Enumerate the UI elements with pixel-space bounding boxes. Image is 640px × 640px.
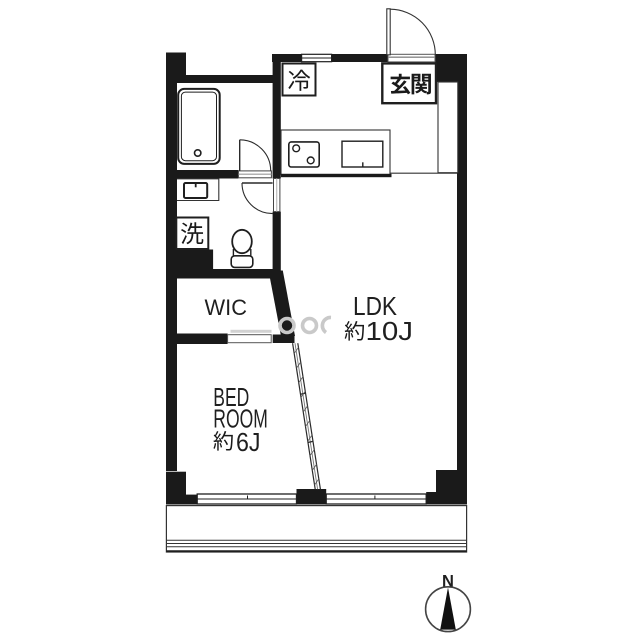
svg-text:10J: 10J [366, 316, 414, 346]
svg-text:N: N [442, 573, 454, 591]
svg-text:WIC: WIC [205, 295, 248, 320]
svg-text:6J: 6J [236, 427, 261, 457]
